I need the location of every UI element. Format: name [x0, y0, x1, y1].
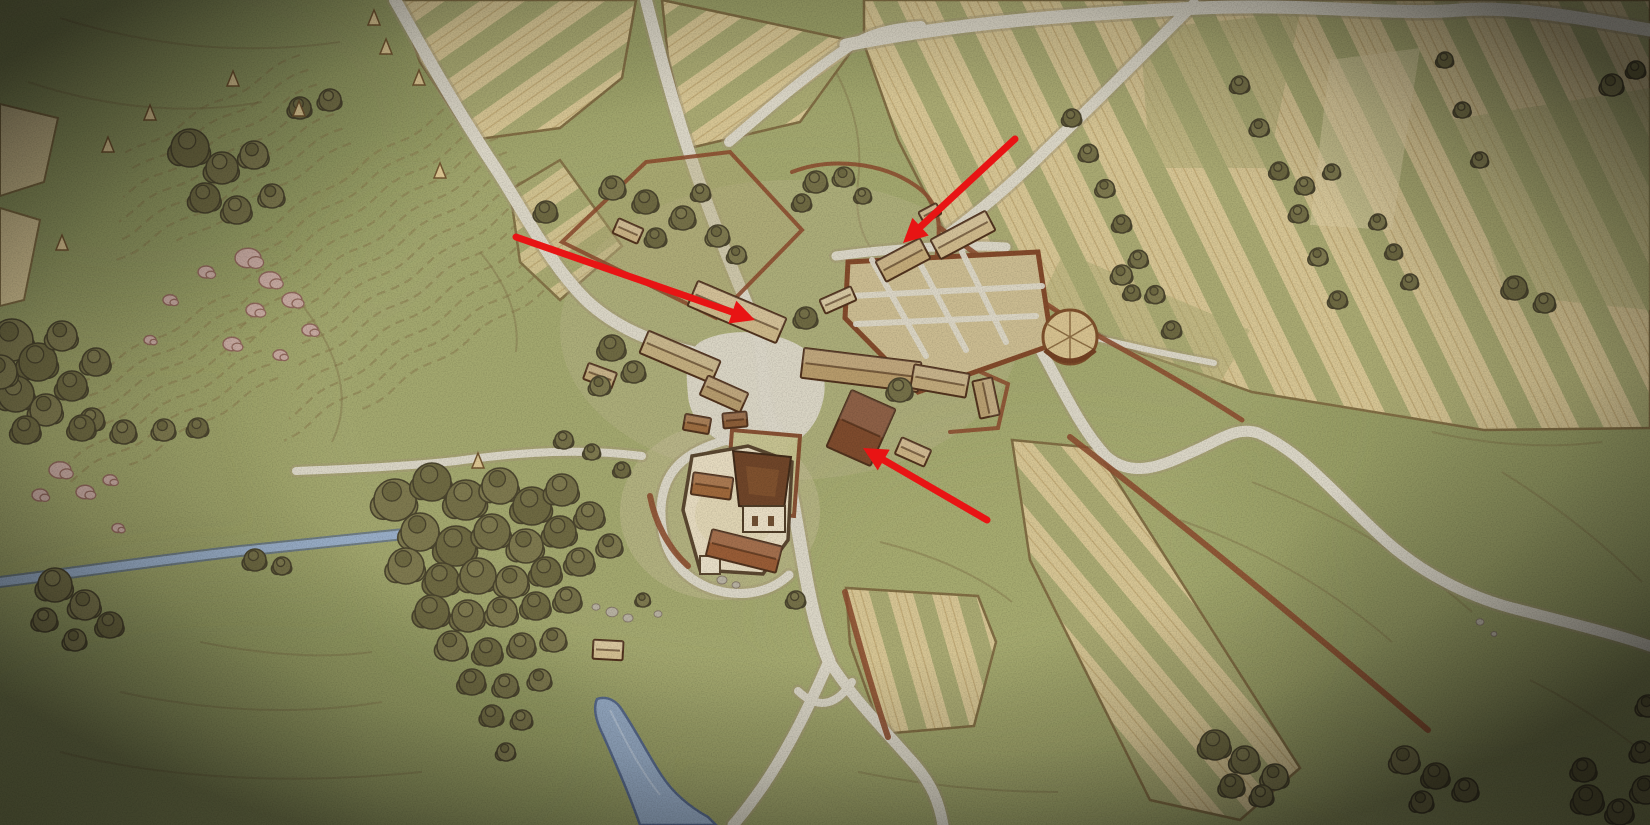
world-map-canvas	[0, 0, 1650, 825]
map-viewport[interactable]	[0, 0, 1650, 825]
vignette-corner	[0, 0, 1650, 825]
